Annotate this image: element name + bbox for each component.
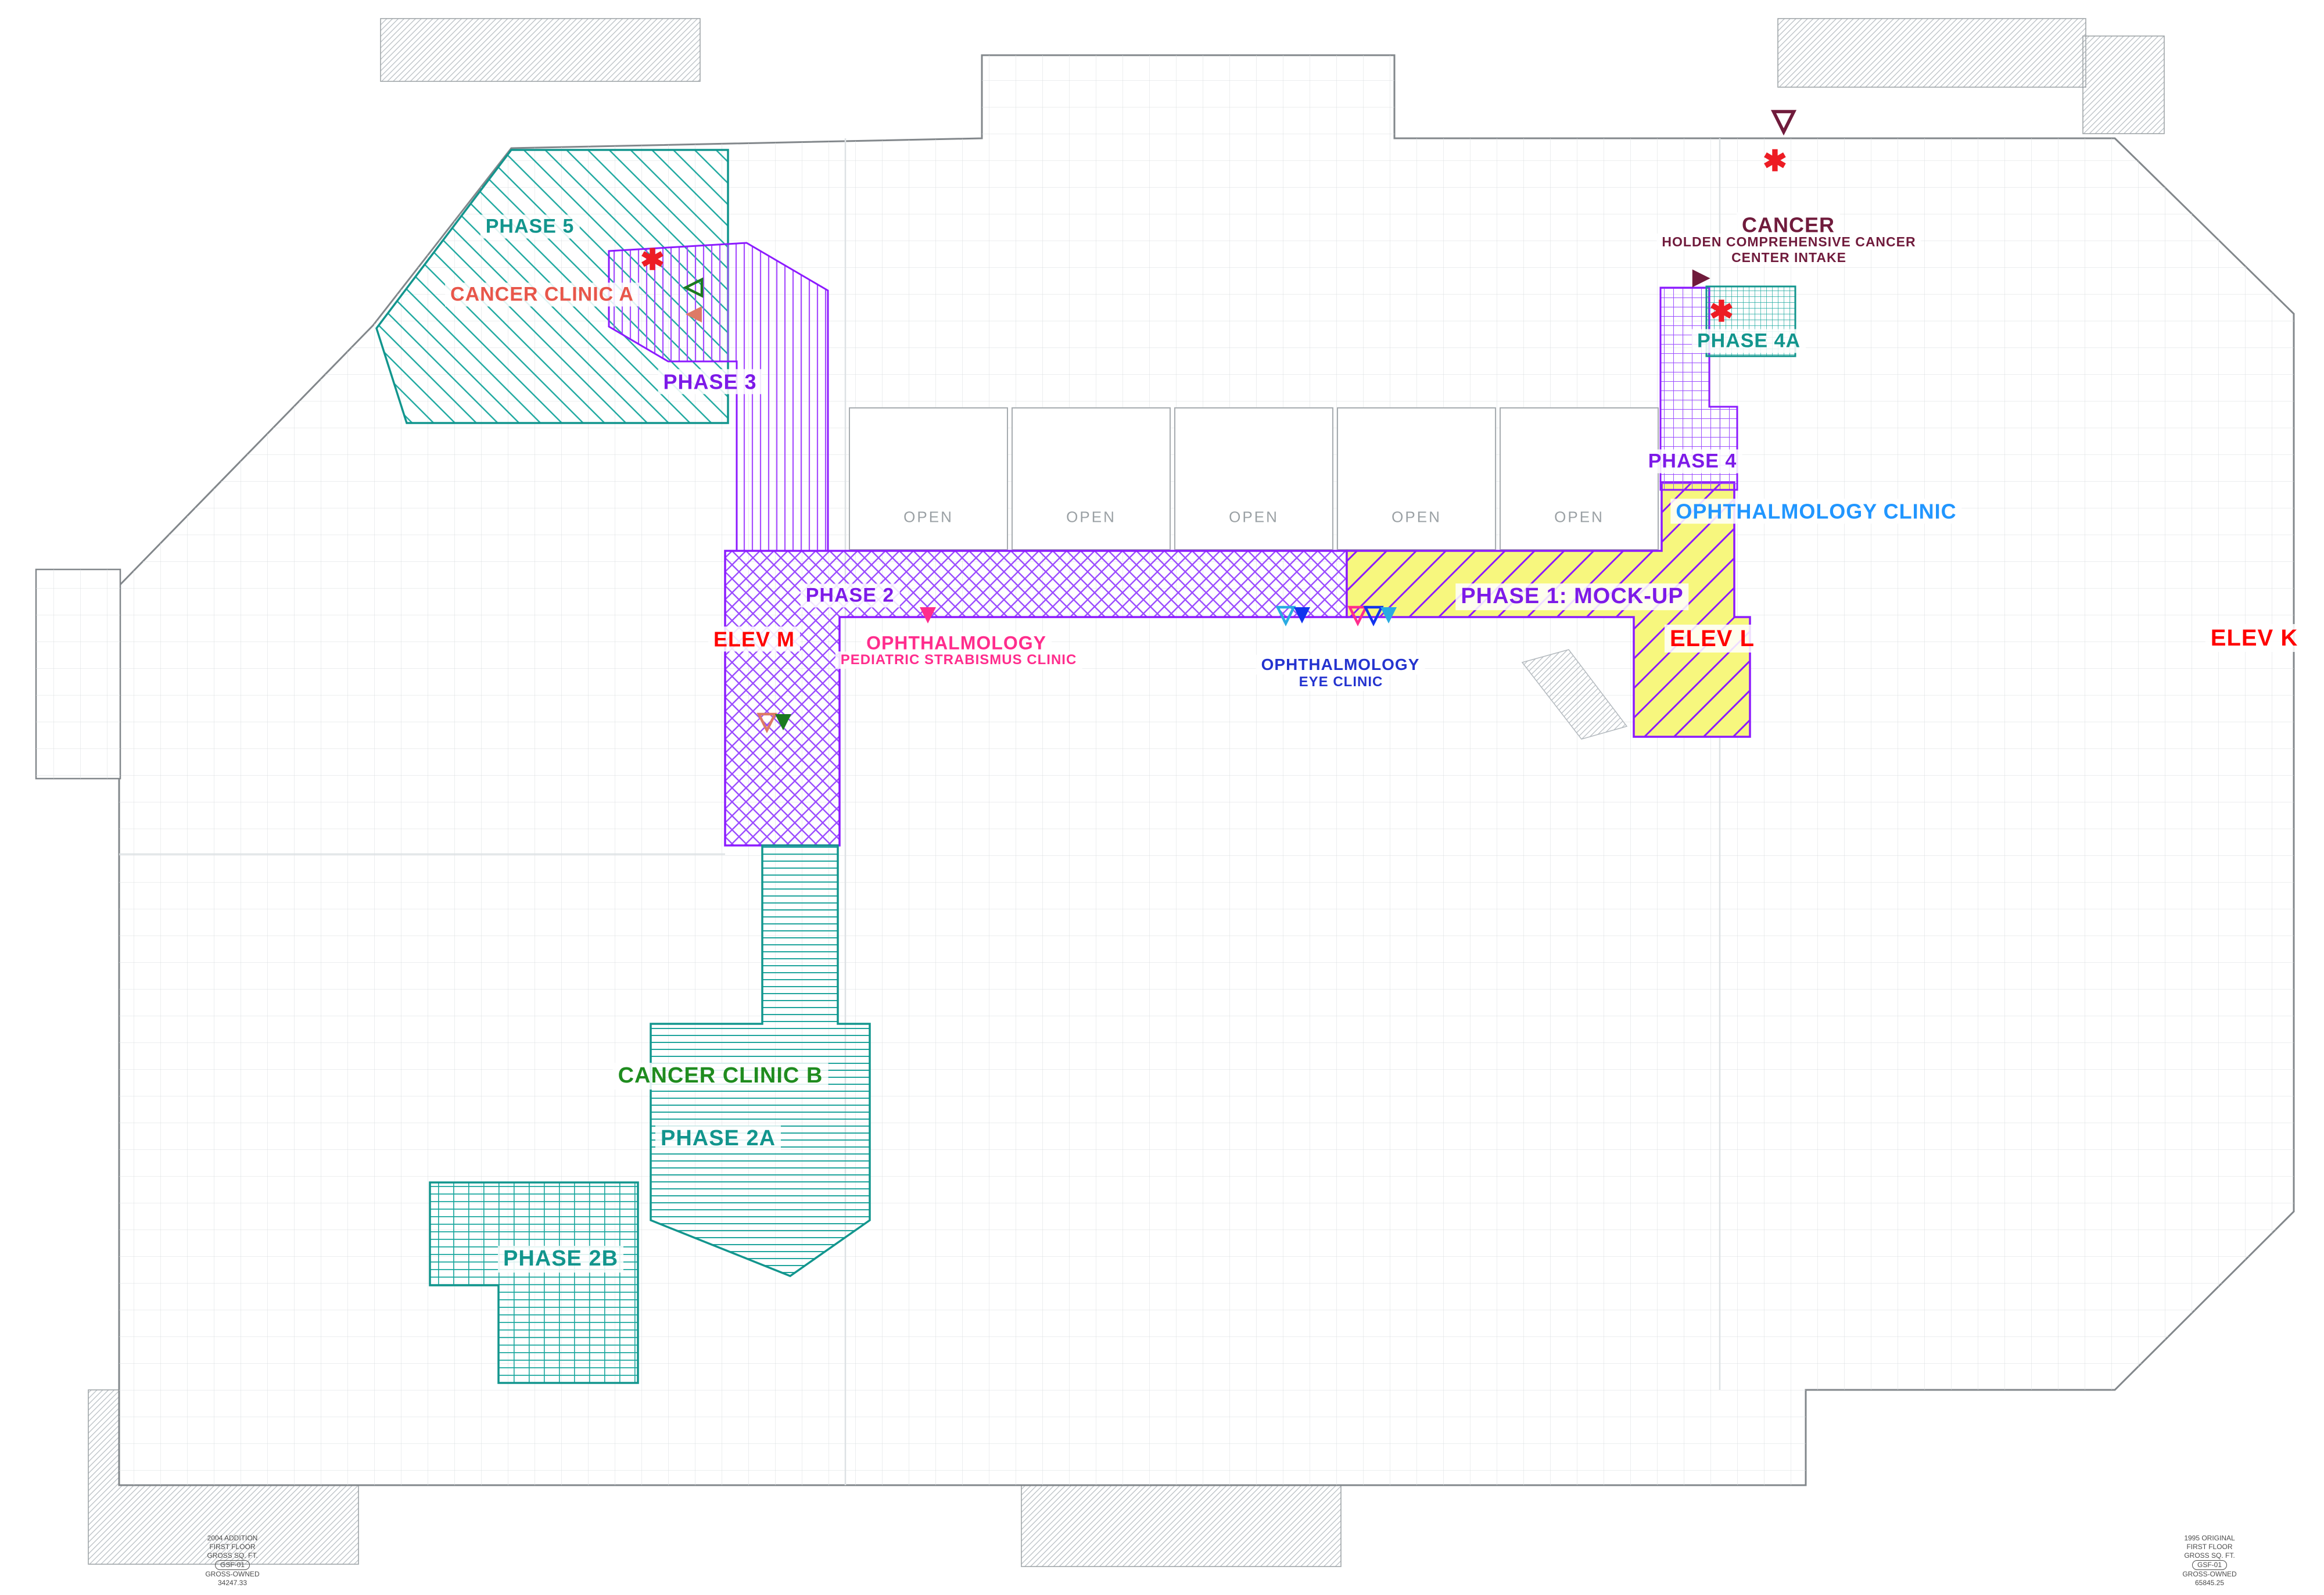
- open-area-label-1: OPEN: [903, 508, 953, 526]
- deck-northeast: [2083, 36, 2164, 134]
- west-annex-texture: [36, 569, 120, 779]
- elev-k-label: ELEV K: [2205, 624, 2303, 652]
- floor-plan-canvas: ✱ ✱ ✱ PHASE 5 CANCER CLINIC A PHASE 3 PH…: [0, 0, 2324, 1595]
- open-area-label-4: OPEN: [1391, 508, 1441, 526]
- ophthalmology-eye-label-line2: EYE CLINIC: [1294, 673, 1389, 691]
- cancer-clinic-a-label: CANCER CLINIC A: [445, 282, 639, 306]
- asterisk-marker-northeast-entry: ✱: [1763, 146, 1787, 175]
- open-area-label-5: OPEN: [1554, 508, 1604, 526]
- gross-sqft-note-2004-addition: 2004 ADDITION FIRST FLOOR GROSS SQ. FT. …: [157, 1534, 308, 1587]
- floor-plan-drawing: [0, 0, 2324, 1595]
- elev-l-label: ELEV L: [1665, 625, 1760, 653]
- note-line: 34247.33: [157, 1579, 308, 1587]
- cancer-intake-label-line3: CENTER INTAKE: [1726, 249, 1852, 266]
- gross-sqft-note-1995-original: 1995 ORIGINAL FIRST FLOOR GROSS SQ. FT. …: [2134, 1534, 2285, 1587]
- note-line: 65845.25: [2134, 1579, 2285, 1587]
- phase-4-label: PHASE 4: [1643, 449, 1742, 473]
- phase-2a-label: PHASE 2A: [655, 1126, 781, 1152]
- asterisk-marker-phase-4a: ✱: [1709, 297, 1734, 326]
- open-courtyards: [849, 408, 1658, 550]
- elev-m-label: ELEV M: [708, 626, 800, 651]
- gsf-tag: GSF-01: [2192, 1560, 2227, 1570]
- open-courtyard-4: [1337, 408, 1495, 550]
- open-courtyard-1: [849, 408, 1007, 550]
- open-courtyard-3: [1175, 408, 1333, 550]
- triangle-marker-outline-maroon-down: [1774, 112, 1794, 132]
- open-courtyard-2: [1012, 408, 1170, 550]
- ophthalmology-clinic-label: OPHTHALMOLOGY CLINIC: [1670, 499, 1961, 524]
- note-line: FIRST FLOOR: [157, 1543, 308, 1551]
- note-line: GROSS SQ. FT.: [2134, 1551, 2285, 1560]
- open-area-label-3: OPEN: [1229, 508, 1279, 526]
- note-line: 2004 ADDITION: [157, 1534, 308, 1543]
- note-line: 1995 ORIGINAL: [2134, 1534, 2285, 1543]
- deck-bottom-center: [1021, 1485, 1341, 1567]
- gsf-tag: GSF-01: [215, 1560, 250, 1570]
- ophthalmology-eye-label-line1: OPHTHALMOLOGY: [1256, 655, 1425, 675]
- open-courtyard-5: [1500, 408, 1658, 550]
- note-line: GROSS-OWNED: [2134, 1570, 2285, 1579]
- open-area-label-2: OPEN: [1066, 508, 1116, 526]
- note-line: GROSS SQ. FT.: [157, 1551, 308, 1560]
- cancer-intake-label-line2: HOLDEN COMPREHENSIVE CANCER: [1656, 234, 1921, 250]
- deck-top-right: [1778, 19, 2086, 87]
- note-line: GROSS-OWNED: [157, 1570, 308, 1579]
- cancer-clinic-b-label: CANCER CLINIC B: [613, 1063, 829, 1089]
- note-line: FIRST FLOOR: [2134, 1543, 2285, 1551]
- phase-1-label: PHASE 1: MOCK-UP: [1455, 583, 1688, 610]
- ophthalmology-pediatric-label-line2: PEDIATRIC STRABISMUS CLINIC: [835, 651, 1082, 669]
- deck-top-left: [381, 19, 700, 81]
- phase-2-label: PHASE 2: [801, 583, 900, 607]
- asterisk-marker-phase-3: ✱: [640, 245, 665, 274]
- phase-4a-label: PHASE 4A: [1692, 329, 1806, 353]
- phase-2b-label: PHASE 2B: [498, 1246, 623, 1273]
- phase-5-label: PHASE 5: [480, 214, 580, 238]
- phase-3-label: PHASE 3: [658, 369, 762, 394]
